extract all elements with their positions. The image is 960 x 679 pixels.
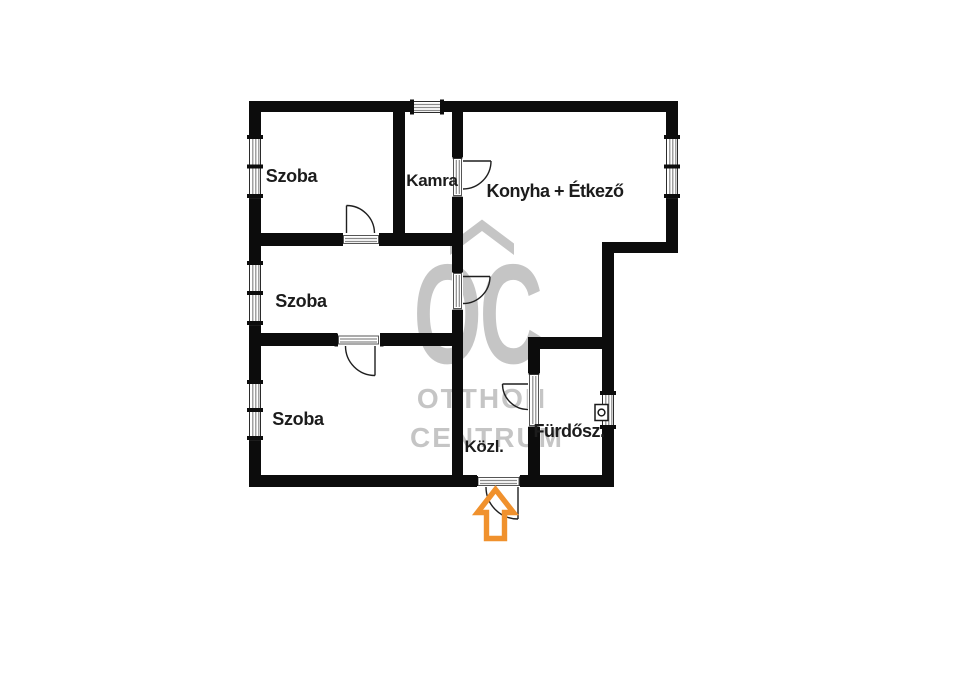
label-szoba-bottom: Szoba xyxy=(272,409,325,429)
label-konyha-etkezo: Konyha + Étkező xyxy=(486,180,624,201)
wall-kamra-left xyxy=(393,101,405,245)
window-szoba-top xyxy=(247,135,263,198)
boiler-dial-icon xyxy=(598,409,605,416)
window-kamra-top xyxy=(410,100,444,115)
label-kamra: Kamra xyxy=(406,171,458,190)
wall-top xyxy=(249,101,678,112)
window-szoba-middle xyxy=(247,261,263,325)
wall-right-lower xyxy=(602,242,614,487)
label-kozl: Közl. xyxy=(464,437,503,456)
window-kitchen-right xyxy=(664,135,680,198)
wall-bottom xyxy=(249,475,613,487)
floorplan-svg: OC OTTHON CENTRUM xyxy=(0,0,960,679)
floorplan-canvas: OC OTTHON CENTRUM xyxy=(0,0,960,679)
label-furdosz: Fürdősz. xyxy=(534,421,605,441)
window-szoba-bottom xyxy=(247,380,263,440)
wall-kitchen-step xyxy=(603,242,678,253)
wall-bathroom-top xyxy=(528,337,614,349)
watermark-logo-text: OC xyxy=(413,236,541,395)
label-szoba-middle: Szoba xyxy=(275,291,328,311)
label-szoba-top: Szoba xyxy=(266,166,319,186)
